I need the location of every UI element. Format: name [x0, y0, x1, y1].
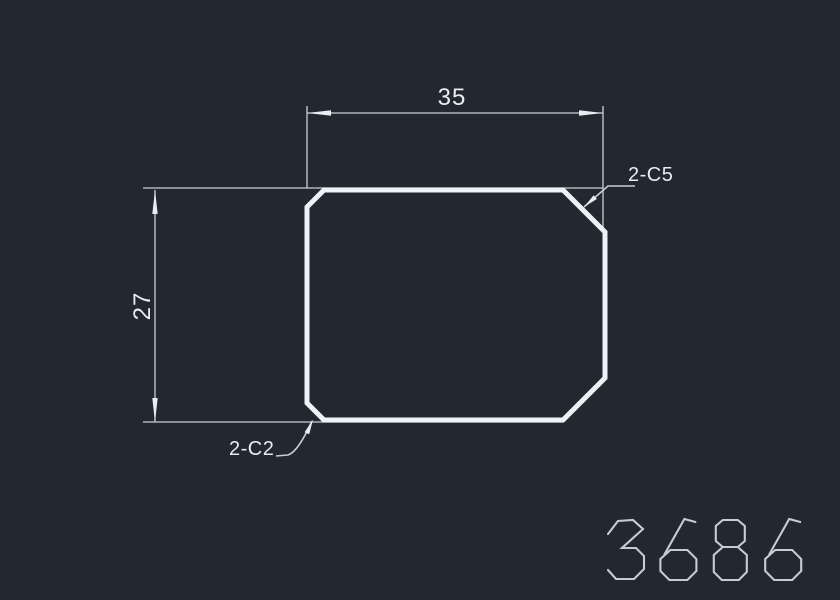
dimension-width[interactable]: 35: [307, 84, 603, 232]
part-number-digit: [608, 520, 644, 579]
part-number[interactable]: [608, 519, 801, 580]
part-number-digit: [660, 519, 696, 580]
profile-outline[interactable]: [307, 190, 605, 420]
leader-arrowhead-c5: [584, 195, 597, 207]
dimension-width-value: 35: [438, 84, 467, 111]
leader-line-c2: [276, 421, 312, 456]
cad-canvas: 27 35 2-C5 2-C2: [0, 0, 840, 600]
dimension-height[interactable]: 27: [129, 188, 603, 422]
leader-top-right-chamfer[interactable]: 2-C5: [584, 164, 673, 207]
arrowhead-right: [579, 110, 603, 115]
dimension-height-value: 27: [129, 292, 156, 321]
leader-bottom-left-chamfer[interactable]: 2-C2: [229, 420, 313, 461]
chamfer-label-bottom-left: 2-C2: [229, 438, 274, 460]
part-number-digit: [714, 520, 747, 580]
arrowhead-down: [152, 398, 157, 422]
part-number-digit: [765, 519, 801, 580]
chamfer-label-top-right: 2-C5: [628, 164, 673, 186]
arrowhead-left: [307, 110, 331, 115]
arrowhead-up: [152, 190, 157, 214]
leader-line-c5: [584, 186, 635, 207]
